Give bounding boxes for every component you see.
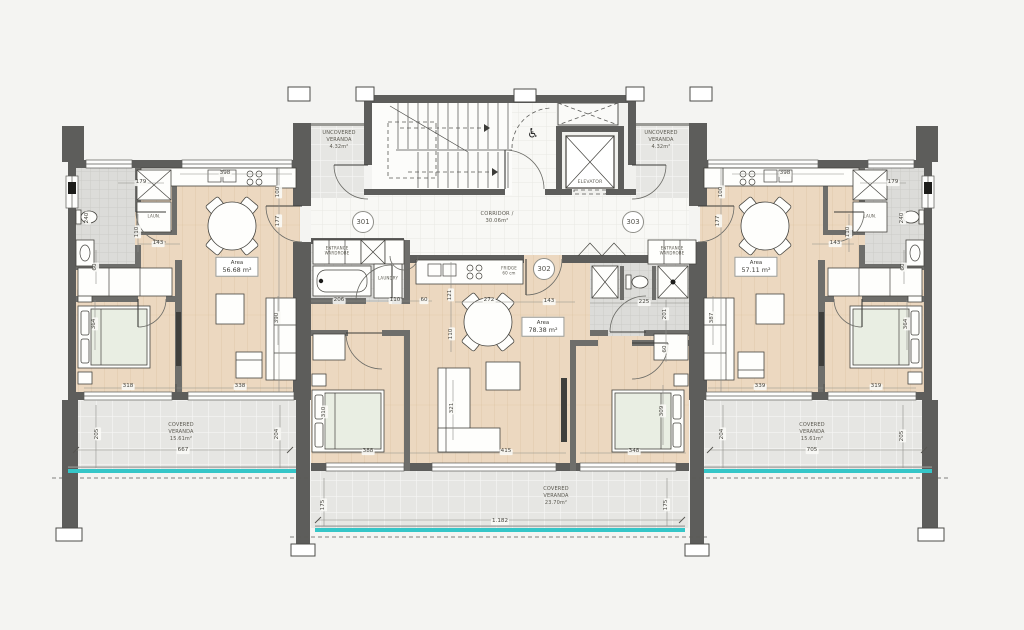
floor-plan-drawing <box>0 0 1024 630</box>
elevator-shaft <box>556 103 624 195</box>
floor-plan-page: ♿ UNCOVEREDVERANDA4.32m²UNCOVEREDVERANDA… <box>0 0 1024 630</box>
